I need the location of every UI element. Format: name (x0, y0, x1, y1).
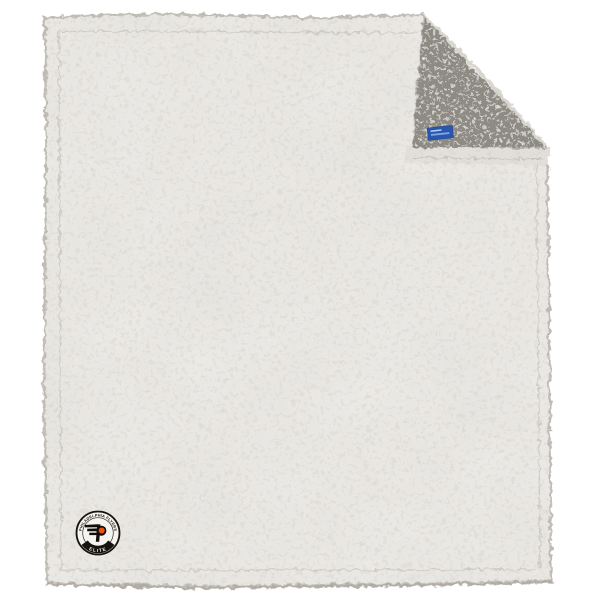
team-logo-patch: PHILADELPHIA FLYERS ELITE (77, 512, 120, 555)
blanket-body (44, 14, 551, 588)
brand-tag-fabric (427, 125, 454, 140)
wing-bar (87, 528, 97, 531)
product-photo: PHILADELPHIA FLYERS ELITE (0, 0, 600, 600)
wing-bar (89, 533, 97, 535)
blanket-photo-canvas: PHILADELPHIA FLYERS ELITE (0, 0, 600, 600)
fold-hem (405, 146, 549, 165)
logo-orange-dot (99, 527, 105, 533)
brand-tag (427, 125, 454, 140)
